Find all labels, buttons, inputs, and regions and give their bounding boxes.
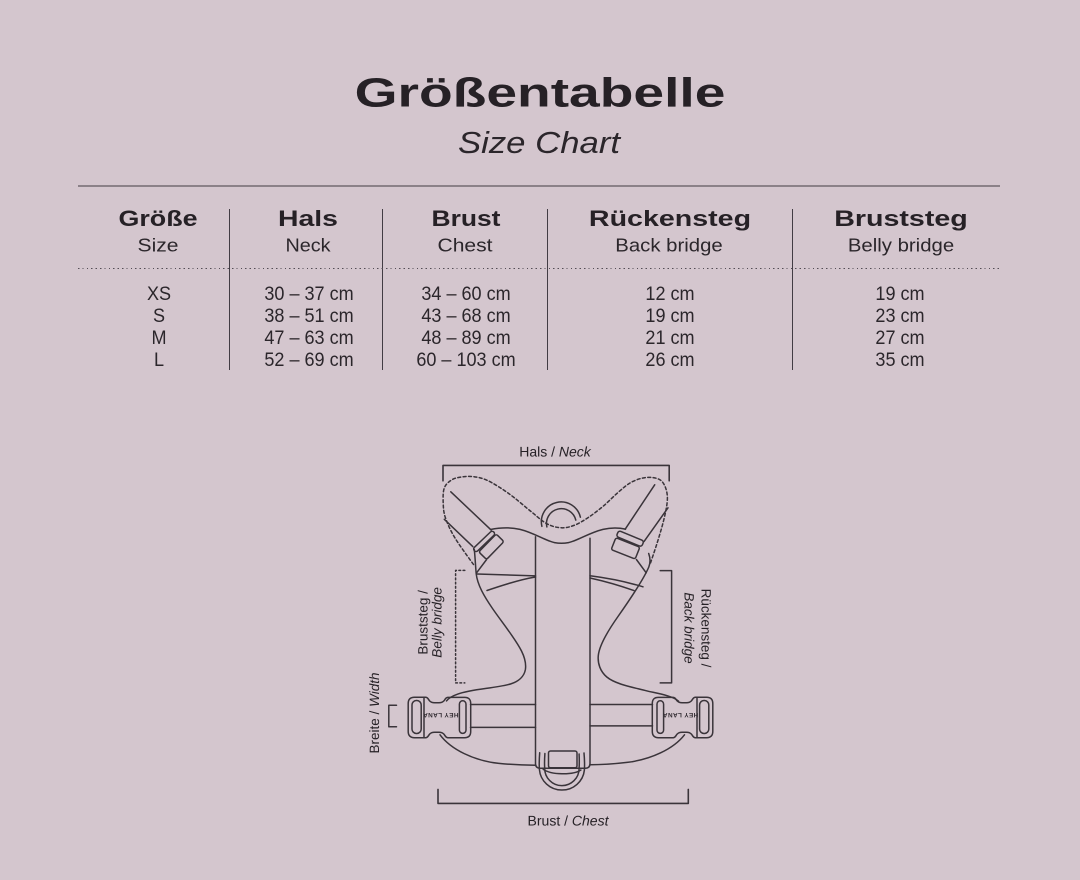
svg-text:Breite / Width: Breite / Width xyxy=(367,673,382,754)
svg-text:HEY LANA: HEY LANA xyxy=(663,711,699,718)
svg-text:Back bridge: Back bridge xyxy=(682,592,697,663)
svg-text:HEY LANA: HEY LANA xyxy=(423,711,459,718)
svg-text:Bruststeg /: Bruststeg / xyxy=(415,590,430,655)
svg-text:Brust / Chest: Brust / Chest xyxy=(528,813,610,829)
svg-text:Belly bridge: Belly bridge xyxy=(430,587,445,658)
svg-text:Hals / Neck: Hals / Neck xyxy=(519,444,592,460)
svg-text:Rückensteg /: Rückensteg / xyxy=(699,589,714,668)
